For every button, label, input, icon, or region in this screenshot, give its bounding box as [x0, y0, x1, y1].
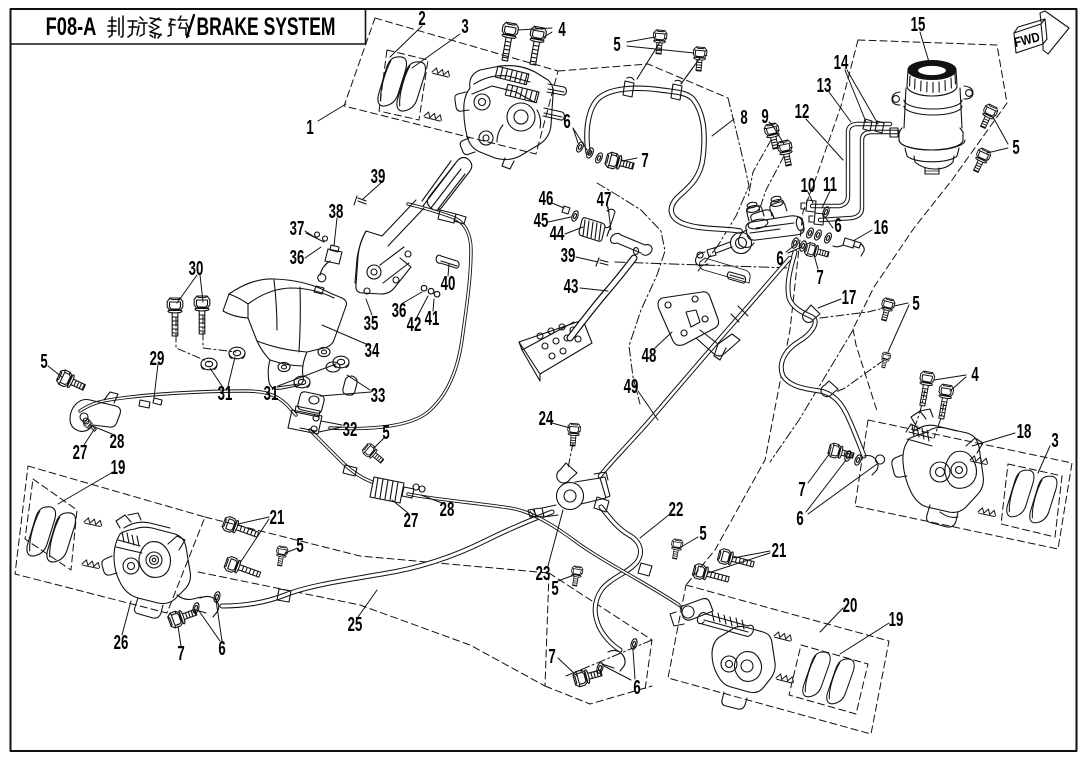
svg-text:7: 7 — [798, 478, 805, 500]
svg-text:1: 1 — [306, 116, 313, 138]
svg-text:3: 3 — [1051, 429, 1058, 451]
svg-text:31: 31 — [218, 382, 233, 404]
svg-text:5: 5 — [699, 522, 706, 544]
svg-text:7: 7 — [177, 642, 184, 664]
svg-text:5: 5 — [40, 350, 47, 372]
svg-text:7: 7 — [816, 266, 823, 288]
svg-text:33: 33 — [371, 384, 386, 406]
svg-text:46: 46 — [539, 187, 554, 209]
svg-text:16: 16 — [874, 216, 889, 238]
svg-text:42: 42 — [407, 313, 422, 335]
svg-text:5: 5 — [912, 292, 919, 314]
svg-text:26: 26 — [114, 631, 129, 653]
svg-text:28: 28 — [110, 430, 125, 452]
svg-text:9: 9 — [761, 105, 768, 127]
svg-text:48: 48 — [642, 344, 657, 366]
svg-text:27: 27 — [73, 441, 88, 463]
svg-text:19: 19 — [889, 608, 904, 630]
svg-text:14: 14 — [834, 51, 849, 73]
svg-text:6: 6 — [796, 507, 803, 529]
svg-text:34: 34 — [365, 339, 380, 361]
svg-text:7: 7 — [548, 645, 555, 667]
svg-text:5: 5 — [551, 577, 558, 599]
svg-text:47: 47 — [597, 188, 612, 210]
svg-text:30: 30 — [189, 257, 204, 279]
svg-text:45: 45 — [534, 209, 549, 231]
svg-text:24: 24 — [539, 407, 554, 429]
svg-text:10: 10 — [801, 174, 816, 196]
svg-text:28: 28 — [440, 498, 455, 520]
svg-text:49: 49 — [624, 375, 639, 397]
svg-text:2: 2 — [418, 7, 425, 29]
svg-text:37: 37 — [290, 217, 305, 239]
svg-text:39: 39 — [371, 165, 386, 187]
svg-text:23: 23 — [536, 562, 551, 584]
svg-text:6: 6 — [776, 247, 783, 269]
svg-text:F08-A: F08-A — [46, 12, 97, 41]
svg-text:5: 5 — [1012, 136, 1019, 158]
svg-text:12: 12 — [795, 100, 810, 122]
svg-text:19: 19 — [111, 456, 126, 478]
svg-text:13: 13 — [817, 74, 832, 96]
svg-text:4: 4 — [558, 18, 566, 40]
svg-text:6: 6 — [633, 676, 640, 698]
svg-text:35: 35 — [364, 312, 379, 334]
svg-text:22: 22 — [669, 498, 684, 520]
svg-text:3: 3 — [461, 15, 468, 37]
svg-text:5: 5 — [382, 421, 389, 443]
svg-text:31: 31 — [264, 382, 279, 404]
svg-text:18: 18 — [1017, 420, 1032, 442]
svg-text:15: 15 — [911, 13, 926, 35]
svg-text:5: 5 — [296, 534, 303, 556]
svg-text:29: 29 — [150, 347, 165, 369]
svg-text:6: 6 — [834, 214, 841, 236]
svg-text:21: 21 — [772, 539, 787, 561]
svg-text:40: 40 — [441, 272, 456, 294]
svg-text:20: 20 — [843, 594, 858, 616]
svg-text:6: 6 — [563, 110, 570, 132]
svg-text:5: 5 — [613, 33, 620, 55]
svg-text:41: 41 — [425, 307, 440, 329]
svg-text:36: 36 — [392, 299, 407, 321]
svg-text:17: 17 — [842, 286, 857, 308]
svg-text:BRAKE SYSTEM: BRAKE SYSTEM — [197, 12, 336, 41]
svg-text:4: 4 — [971, 363, 979, 385]
svg-text:43: 43 — [564, 275, 579, 297]
svg-text:44: 44 — [550, 222, 565, 244]
svg-text:21: 21 — [270, 506, 285, 528]
svg-text:6: 6 — [218, 637, 225, 659]
svg-text:7: 7 — [641, 149, 648, 171]
svg-text:25: 25 — [348, 613, 363, 635]
svg-text:36: 36 — [290, 246, 305, 268]
svg-text:11: 11 — [823, 173, 837, 195]
svg-text:27: 27 — [404, 509, 419, 531]
svg-text:8: 8 — [740, 106, 747, 128]
svg-text:38: 38 — [329, 200, 344, 222]
svg-text:39: 39 — [561, 244, 576, 266]
svg-text:32: 32 — [343, 418, 358, 440]
